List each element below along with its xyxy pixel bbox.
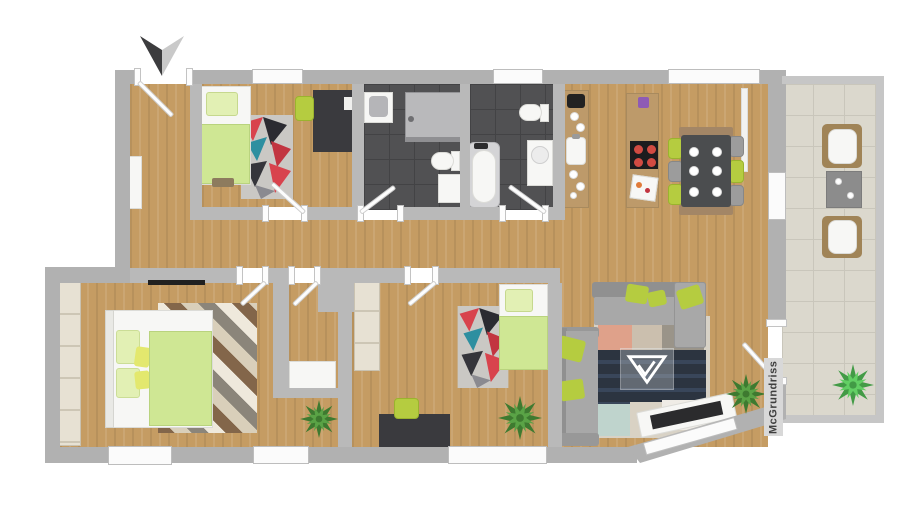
wall-storage-west: [273, 283, 289, 392]
shelf-storage: [289, 361, 336, 390]
cup: [835, 178, 842, 185]
shrub-balcony: [832, 364, 874, 406]
bathtub-faucet: [474, 143, 488, 149]
door-post: [288, 266, 295, 285]
wall-hallway-south: [436, 268, 560, 283]
wall-hallway-south: [352, 268, 408, 283]
window-bathroom-2: [493, 69, 543, 84]
wall-storage-south: [273, 388, 347, 398]
island-accessory: [638, 97, 649, 108]
burner: [647, 145, 656, 154]
sofa-pillow: [559, 378, 586, 401]
desk-bedroom-2: [379, 414, 450, 450]
bed-1-pillow: [206, 92, 238, 116]
bed-master-duvet: [149, 331, 212, 426]
bathtub-basin: [472, 150, 496, 203]
lounge-chair-cushion: [828, 129, 857, 164]
food-item: [645, 188, 650, 193]
wall-bedroom2-living: [548, 283, 562, 455]
toilet-2-bowl: [519, 104, 542, 121]
window-bedroom-2: [448, 446, 547, 464]
balcony-wall-south: [782, 415, 884, 423]
kitchen-sink-dark: [567, 94, 585, 108]
kitchen-faucet: [572, 134, 580, 139]
burner: [647, 158, 656, 167]
bed-master-headboard: [105, 310, 114, 428]
kitchen-plate: [570, 112, 579, 121]
window-master-2: [253, 446, 309, 464]
wall-tv-master: [148, 280, 205, 285]
door-post: [236, 266, 243, 285]
plate: [712, 166, 722, 176]
wall-south: [170, 447, 255, 463]
door-post: [397, 205, 404, 222]
radiator: [741, 88, 748, 172]
plant-living-room: [726, 368, 766, 420]
bed-1-bench: [212, 178, 234, 187]
window-master-1: [108, 446, 172, 465]
kitchen-plate: [576, 123, 585, 132]
door-post: [262, 205, 269, 222]
wall-west-upper: [115, 70, 130, 283]
balcony-wall-north: [782, 76, 884, 84]
shower-head: [408, 116, 414, 122]
wall-south: [45, 447, 110, 463]
mcgrundriss-triangle-logo: [626, 352, 668, 386]
vanity-sink: [531, 146, 549, 164]
plant-master-bedroom: [300, 398, 338, 440]
wall-bath-south: [400, 207, 503, 220]
food-item: [636, 182, 642, 188]
bed-1-duvet: [200, 124, 250, 184]
kitchen-plate: [570, 192, 577, 199]
plate: [712, 147, 722, 157]
toilet-1-bowl: [431, 152, 454, 170]
door-post: [186, 68, 193, 86]
bath-cabinet: [438, 174, 462, 203]
wall-hall-bedroom1: [190, 84, 202, 213]
balcony-wall-east: [876, 76, 884, 423]
cup: [847, 192, 854, 199]
wall-south: [307, 447, 450, 463]
bed-2-pillow: [505, 289, 533, 312]
window-dining-east: [768, 172, 786, 220]
window-dining: [668, 69, 760, 84]
plate: [689, 147, 699, 157]
sofa-pillow: [625, 283, 650, 304]
chair-bedroom-1: [295, 96, 314, 121]
door-post: [404, 266, 411, 285]
lounge-chair-cushion: [828, 220, 857, 254]
wall-west-lower: [45, 267, 60, 463]
dining-chair-green: [729, 160, 744, 183]
kitchen-plate: [569, 170, 578, 179]
kitchen-sink: [566, 137, 586, 165]
door-post: [499, 205, 506, 222]
bed-2-duvet: [499, 316, 548, 370]
wall-north: [188, 70, 254, 84]
dining-chair-gray: [729, 185, 744, 206]
balcony-table: [826, 171, 862, 208]
wall-bedroom1-south: [190, 207, 266, 220]
kitchen-plate: [576, 182, 585, 191]
rug-patch-mint: [598, 404, 630, 436]
shower-glass: [405, 137, 462, 142]
plate: [712, 187, 722, 197]
burner: [634, 145, 643, 154]
wall-bath2-kitchen: [553, 70, 565, 220]
watermark-text: McGrundriss: [764, 358, 783, 436]
wall-block: [318, 268, 354, 312]
wall-north: [541, 70, 670, 84]
chair-bedroom-2: [394, 398, 419, 419]
wall-bath-divider: [460, 84, 470, 210]
floor-hallway: [130, 220, 565, 268]
floor-plan-canvas: McGrundriss: [0, 0, 924, 520]
plant-bedroom-2: [498, 396, 542, 440]
plate: [689, 166, 699, 176]
plate: [689, 187, 699, 197]
wall-north: [301, 70, 495, 84]
dining-chair-gray: [729, 136, 744, 157]
wardrobe-bedroom-2: [354, 279, 380, 371]
burner: [634, 158, 643, 167]
door-post: [766, 319, 787, 327]
wardrobe-master: [57, 282, 81, 446]
north-arrow-icon: [138, 34, 186, 78]
window-bedroom-1: [252, 69, 303, 84]
washing-machine-lid: [369, 96, 388, 117]
wall-bedroom1-bath1: [352, 70, 364, 213]
wall-bedroom2-west: [338, 312, 352, 455]
wall-south: [545, 447, 637, 463]
cutting-board: [629, 174, 658, 201]
